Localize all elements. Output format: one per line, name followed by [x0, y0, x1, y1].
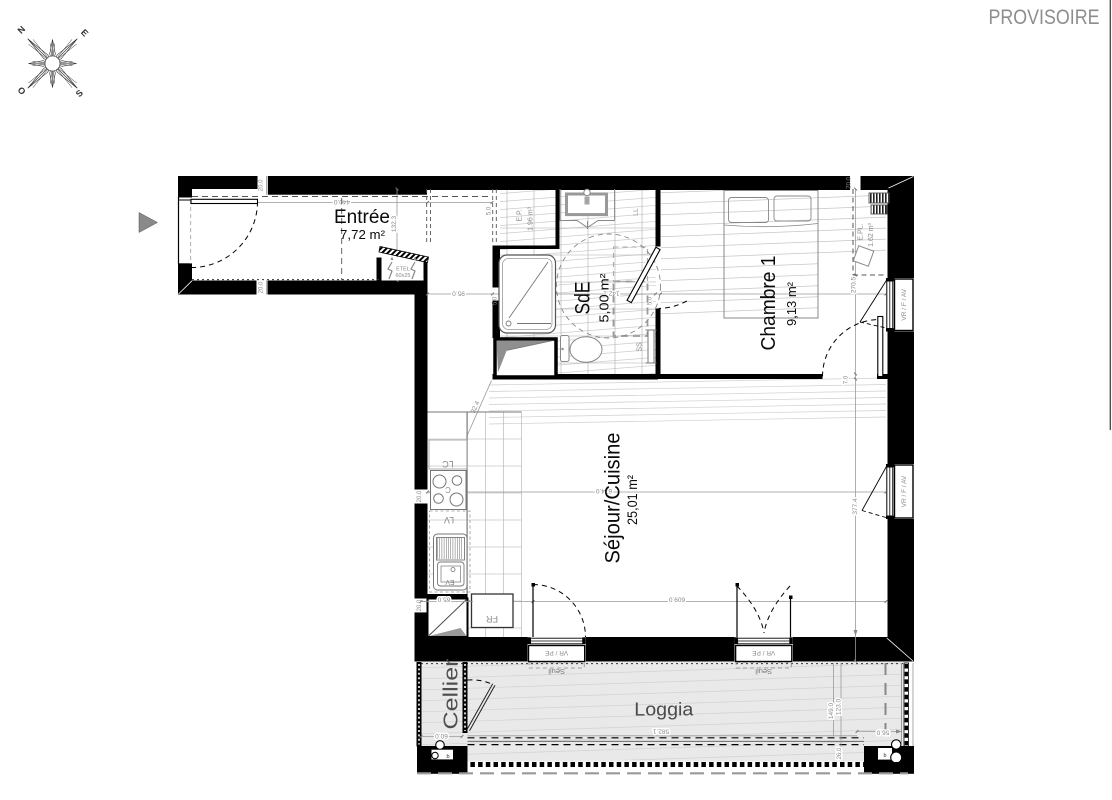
svg-text:20.0: 20.0: [847, 177, 853, 189]
svg-text:E.P.: E.P.: [517, 209, 524, 221]
svg-text:PROVISOIRE: PROVISOIRE: [989, 5, 1100, 29]
svg-text:C: C: [445, 485, 451, 494]
svg-text:26.0: 26.0: [837, 747, 843, 759]
svg-text:Cellier: Cellier: [441, 658, 463, 729]
svg-text:E.PL.: E.PL.: [858, 223, 865, 240]
svg-text:7,72 m²: 7,72 m²: [340, 228, 385, 242]
svg-text:Seuil: Seuil: [755, 667, 772, 676]
svg-text:LL: LL: [633, 208, 640, 216]
svg-text:SdE: SdE: [572, 282, 595, 315]
svg-text:LC: LC: [442, 459, 454, 469]
svg-text:1.96 m³: 1.96 m³: [528, 206, 535, 230]
svg-text:20.0: 20.0: [417, 490, 423, 502]
svg-text:56.0: 56.0: [876, 728, 889, 735]
svg-text:5.0: 5.0: [487, 206, 493, 215]
svg-text:Entrée: Entrée: [334, 207, 390, 228]
svg-text:Loggia: Loggia: [634, 698, 694, 719]
svg-text:270.5: 270.5: [850, 276, 857, 293]
svg-text:EV: EV: [445, 578, 455, 585]
svg-text:SS: SS: [637, 342, 644, 352]
svg-text:VR / F / AV: VR / F / AV: [901, 288, 908, 320]
svg-text:149.0: 149.0: [828, 702, 835, 719]
svg-text:1.62 m³: 1.62 m³: [868, 222, 875, 246]
svg-text:123.0: 123.0: [835, 698, 842, 715]
svg-text:95.0: 95.0: [452, 290, 465, 297]
svg-text:7.0: 7.0: [844, 375, 850, 384]
svg-text:Séjour/Cuisine: Séjour/Cuisine: [602, 433, 625, 564]
svg-text:377.4: 377.4: [852, 498, 859, 515]
svg-text:20.0: 20.0: [258, 281, 264, 293]
svg-text:Seuil: Seuil: [548, 667, 565, 676]
svg-text:b: b: [883, 753, 886, 759]
svg-text:VR / F / AV: VR / F / AV: [901, 475, 908, 507]
svg-text:LV: LV: [444, 515, 454, 525]
svg-text:5.0: 5.0: [648, 296, 654, 305]
svg-text:65.0: 65.0: [437, 596, 450, 603]
svg-text:ETEL: ETEL: [396, 267, 410, 273]
svg-text:132.3: 132.3: [391, 215, 398, 232]
svg-text:FR: FR: [486, 614, 498, 624]
svg-text:VR / PE: VR / PE: [544, 649, 568, 656]
svg-text:b: b: [446, 754, 449, 760]
svg-text:5.0: 5.0: [493, 296, 499, 305]
svg-text:9,13 m²: 9,13 m²: [784, 281, 799, 326]
svg-text:609.0: 609.0: [668, 596, 685, 603]
svg-text:5,00 m²: 5,00 m²: [598, 274, 612, 323]
svg-text:582.1: 582.1: [652, 728, 669, 735]
svg-text:60x25: 60x25: [396, 273, 411, 279]
svg-text:60.0: 60.0: [435, 732, 448, 739]
svg-text:VR / PE: VR / PE: [751, 649, 775, 656]
svg-text:20.0: 20.0: [258, 179, 264, 191]
svg-text:25,01 m²: 25,01 m²: [625, 475, 640, 525]
svg-text:Chambre 1: Chambre 1: [757, 256, 780, 351]
